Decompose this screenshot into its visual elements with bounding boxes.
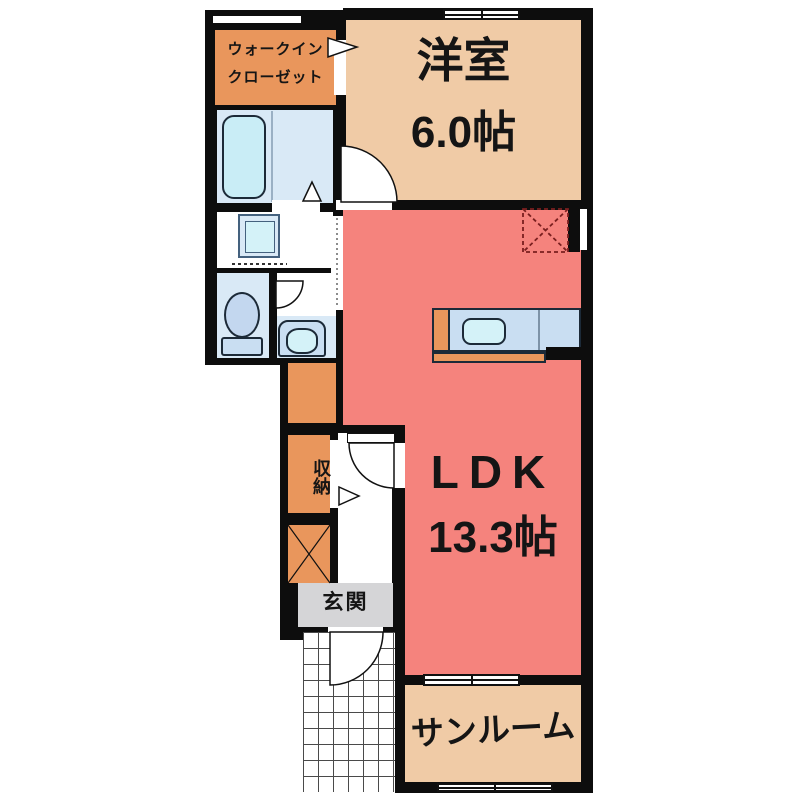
- washbasin-bowl: [286, 328, 318, 354]
- shoe-cabinet: [288, 525, 330, 583]
- wic-label-line2: クローゼット: [215, 70, 336, 86]
- ldk-right-opening: [580, 209, 587, 250]
- sunroom-bottom-window: [437, 783, 553, 792]
- floorplan: ウォークイン クローゼット 洋室 6.0帖 LDK 13.3帖 収納 玄関 サン…: [0, 0, 800, 800]
- kitchen-cabinet-bottom: [432, 352, 546, 363]
- hallway-door-opening: [392, 443, 405, 488]
- entrance-label: 玄関: [298, 592, 393, 614]
- washing-machine-pan-inner: [245, 221, 275, 253]
- ldk-label: LDK: [405, 448, 581, 496]
- entrance-porch: [303, 632, 395, 792]
- kitchen-cabinet-left: [432, 308, 449, 352]
- toilet-bowl: [224, 292, 260, 338]
- wall-stub-kitchen: [546, 347, 581, 360]
- kitchen-sink: [462, 318, 506, 345]
- corridor-cabinet: [288, 363, 336, 423]
- bathroom-door-opening: [272, 200, 320, 212]
- toilet-tank: [221, 337, 263, 356]
- western-room-label: 洋室: [346, 36, 581, 85]
- wall-stub-fridge: [568, 207, 580, 252]
- hallway: [338, 433, 392, 583]
- western-room-window: [443, 9, 520, 20]
- bathroom-divider: [271, 111, 273, 202]
- storage-opening: [330, 440, 338, 508]
- storage-label: 収納: [288, 446, 330, 508]
- ldk-size: 13.3帖: [397, 515, 589, 561]
- wic-window: [213, 16, 301, 23]
- kitchen-counter-divider: [538, 310, 540, 350]
- wic-label-line1: ウォークイン: [215, 42, 336, 58]
- western-room-door-opening: [336, 200, 392, 210]
- western-room-size: 6.0帖: [346, 110, 581, 156]
- sunroom-top-window: [423, 674, 520, 686]
- bathtub: [222, 115, 266, 199]
- hallway-door-panel: [347, 433, 395, 443]
